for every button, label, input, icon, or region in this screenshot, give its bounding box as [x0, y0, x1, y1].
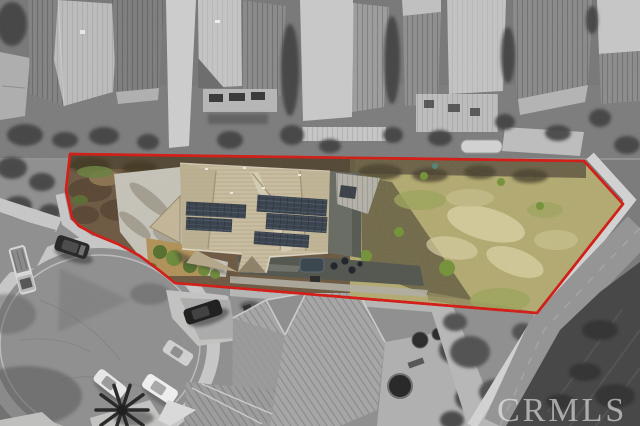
aerial-listing-photo: CRMLS [0, 0, 640, 426]
crmls-watermark: CRMLS [497, 392, 627, 426]
photo-grain [0, 0, 640, 426]
